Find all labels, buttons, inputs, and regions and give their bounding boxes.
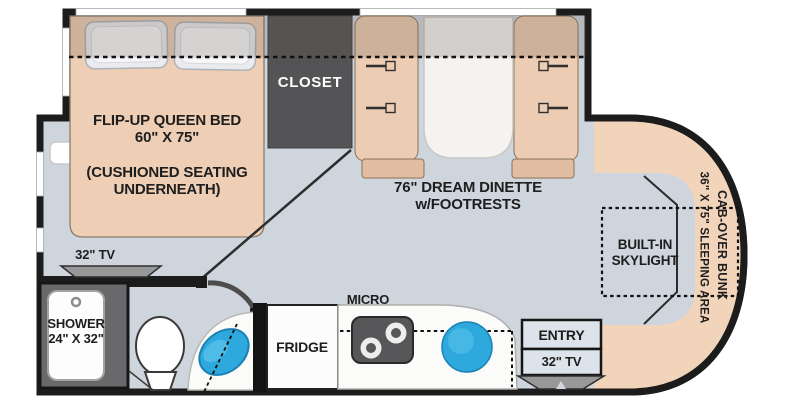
bed-title: FLIP-UP QUEEN BED <box>67 112 267 129</box>
bed-note: (CUSHIONED SEATING UNDERNEATH) <box>67 164 267 199</box>
shower-label: SHOWER 24" X 32" <box>36 317 116 347</box>
window-side-left-1 <box>37 152 44 196</box>
bed-label: FLIP-UP QUEEN BED 60" X 75" <box>67 112 267 147</box>
dinette-footrest-left <box>362 159 424 178</box>
micro-label: MICRO <box>318 293 418 308</box>
cab-over-bunk-label: CAB-OVER BUNK <box>715 185 729 305</box>
overhead-shading-band <box>69 16 586 58</box>
window-side-left-2 <box>37 228 44 252</box>
fridge-label: FRIDGE <box>252 339 352 355</box>
skylight-line2: SKYLIGHT <box>595 253 695 269</box>
dinette-footrest-right <box>512 159 574 178</box>
window-rear-left <box>63 28 70 96</box>
skylight-label: BUILT-IN SKYLIGHT <box>595 237 695 268</box>
cab-over-bunk-size-label: 36" X 75" SLEEPING AREA <box>696 168 709 328</box>
skylight-line1: BUILT-IN <box>595 237 695 253</box>
dinette-title: 76" DREAM DINETTE <box>368 179 568 196</box>
cooktop <box>352 317 413 363</box>
bed-note-line1: (CUSHIONED SEATING <box>67 164 267 181</box>
kitchen-sink <box>442 322 492 372</box>
dinette-label: 76" DREAM DINETTE w/FOOTRESTS <box>368 179 568 214</box>
entry-label: ENTRY <box>522 327 601 343</box>
shower-size: 24" X 32" <box>36 332 116 347</box>
entry-tv-label: 32" TV <box>522 355 601 370</box>
rv-floorplan: CLOSET FLIP-UP QUEEN BED 60" X 75" (CUSH… <box>0 0 800 400</box>
bedroom-tv-icon <box>61 266 161 277</box>
shower-title: SHOWER <box>36 317 116 332</box>
closet-label: CLOSET <box>270 74 350 91</box>
bed-size: 60" X 75" <box>67 129 267 146</box>
window-top-left <box>76 9 246 16</box>
window-top-right <box>360 9 556 16</box>
door-hinge-post <box>196 276 207 288</box>
bed-note-line2: UNDERNEATH) <box>67 181 267 198</box>
bedroom-tv-label: 32" TV <box>45 248 145 263</box>
dinette-subtitle: w/FOOTRESTS <box>368 196 568 213</box>
